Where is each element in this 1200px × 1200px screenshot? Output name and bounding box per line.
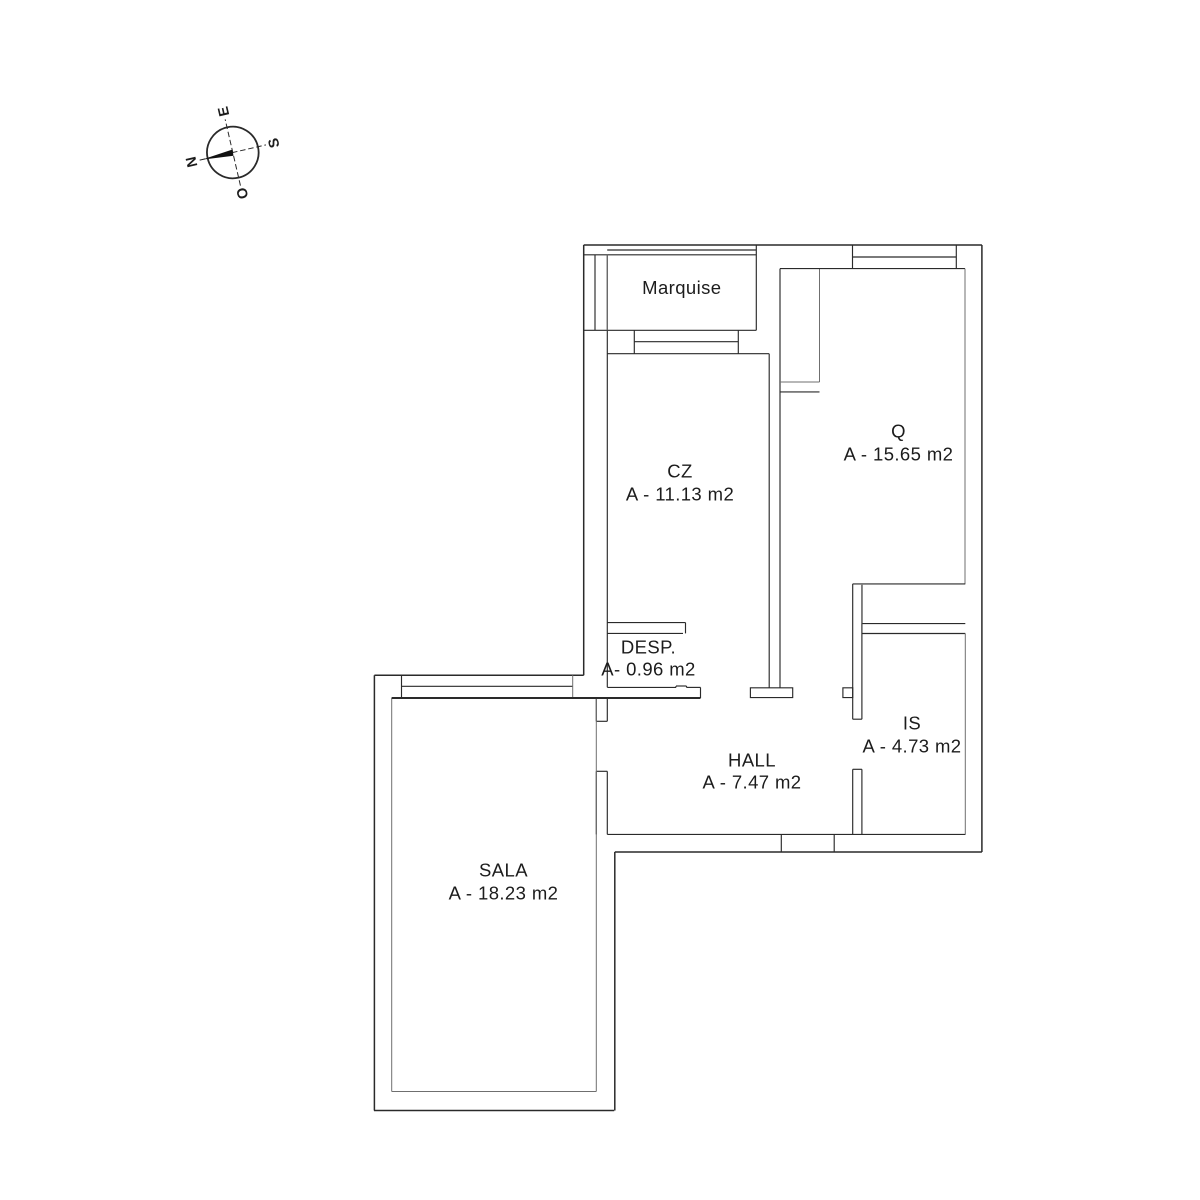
svg-text:S: S [266, 136, 284, 149]
svg-text:E: E [215, 105, 233, 118]
svg-text:N: N [183, 155, 201, 169]
svg-text:O: O [234, 186, 252, 201]
